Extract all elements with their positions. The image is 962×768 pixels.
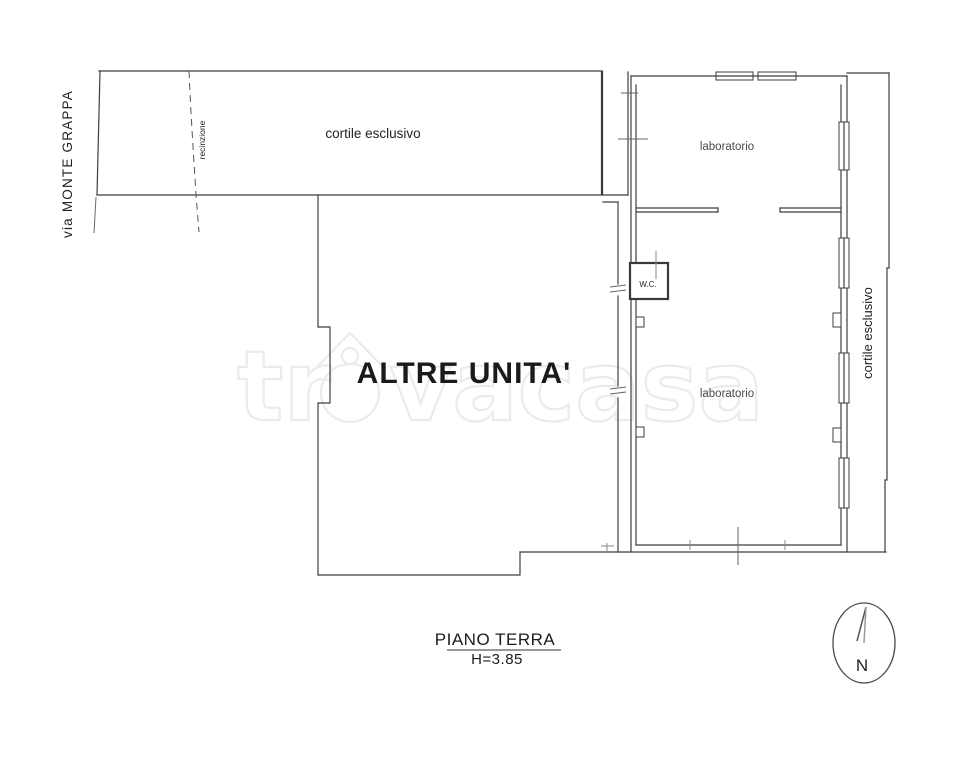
courtyard-top-outline: [94, 71, 628, 233]
floor-title: PIANO TERRA: [435, 630, 556, 649]
title-block: PIANO TERRA H=3.85: [435, 630, 561, 668]
street-name-label: via MONTE GRAPPA: [60, 90, 75, 238]
fence-label: recinzione: [197, 120, 207, 159]
compass-north-label: N: [856, 656, 868, 675]
wc-label: W.C.: [639, 280, 656, 289]
floor-height-label: H=3.85: [471, 651, 523, 668]
courtyard-top-label: cortile esclusivo: [325, 126, 420, 141]
floor-plan-page: tr vacasa: [0, 0, 962, 768]
watermark-text-prefix: tr: [237, 330, 331, 443]
partition-wall: [636, 208, 841, 212]
street-boundary-line: [94, 197, 96, 233]
compass: N: [833, 603, 895, 683]
courtyard-right-label: cortile esclusivo: [860, 287, 875, 379]
laboratory-lower-label: laboratorio: [700, 388, 754, 400]
floor-plan-drawing: tr vacasa: [0, 0, 962, 768]
other-units-label: ALTRE UNITA': [357, 357, 572, 390]
laboratory-upper-label: laboratorio: [700, 141, 754, 153]
